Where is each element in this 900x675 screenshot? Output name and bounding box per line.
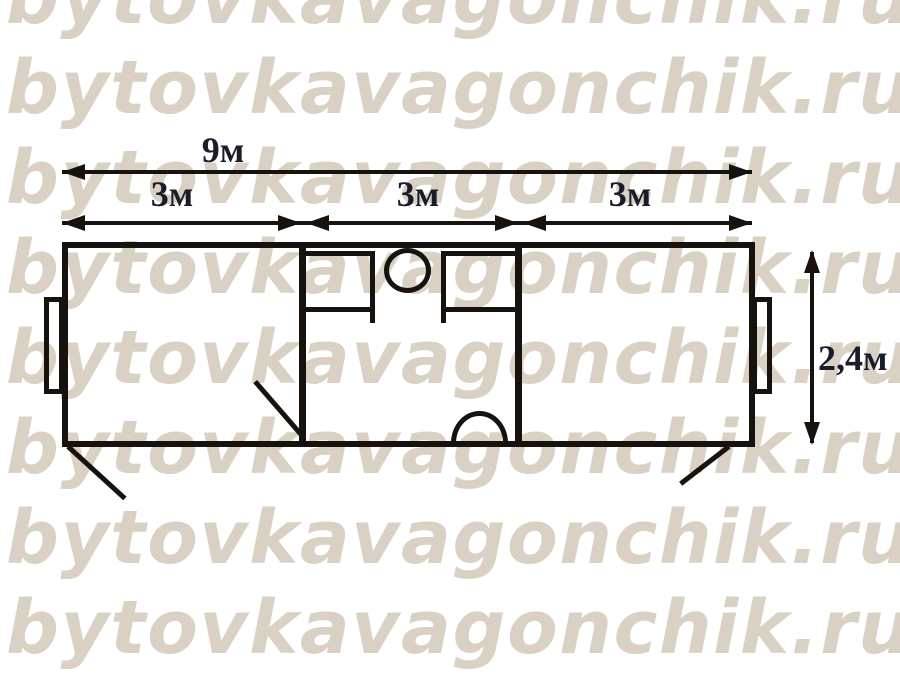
watermark-text: bytovkavagonchik.ru — [6, 591, 900, 665]
counter-right-edge — [441, 311, 446, 323]
watermark-text: bytovkavagonchik.ru — [6, 501, 900, 575]
arrow-left-icon — [523, 215, 546, 231]
counter-right — [441, 251, 517, 312]
arrow-down-icon — [804, 422, 820, 445]
window-right — [752, 297, 772, 394]
diagram-canvas: bytovkavagonchik.ru bytovkavagonchik.ru … — [0, 0, 900, 675]
window-left — [44, 297, 64, 394]
counter-left — [303, 251, 375, 312]
dimension-label-section-3: 3м — [570, 176, 690, 212]
counter-left-edge — [370, 311, 375, 323]
dimension-line-sections — [62, 221, 752, 225]
arrow-right-icon — [495, 215, 518, 231]
watermark-text: bytovkavagonchik.ru — [6, 51, 900, 125]
dimension-label-section-2: 3м — [358, 176, 478, 212]
dimension-label-height: 2,4м — [818, 340, 888, 376]
arrow-left-icon — [62, 164, 85, 180]
watermark-text: bytovkavagonchik.ru — [6, 0, 900, 35]
arrow-up-icon — [804, 250, 820, 273]
sink-circle — [384, 248, 431, 293]
dimension-line-height — [810, 252, 814, 443]
arrow-left-icon — [62, 215, 85, 231]
arrow-right-icon — [278, 215, 301, 231]
dimension-label-total: 9м — [163, 132, 283, 168]
arrow-right-icon — [729, 164, 752, 180]
dimension-label-section-1: 3м — [112, 176, 232, 212]
arrow-right-icon — [729, 215, 752, 231]
arrow-left-icon — [306, 215, 329, 231]
